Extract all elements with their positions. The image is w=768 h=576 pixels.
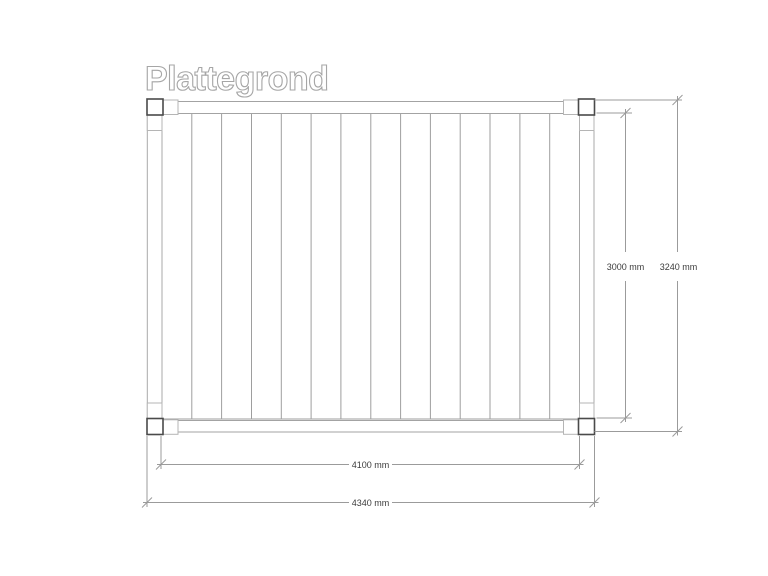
corner-post-bottom-left [147, 419, 163, 435]
corner-post-top-left [147, 99, 163, 115]
top-beam [163, 102, 579, 114]
plattegrond-drawing-page: Plattegrond [0, 0, 768, 576]
drawing-title: Plattegrond [145, 60, 328, 98]
floor-plan-canvas: Plattegrond [0, 0, 768, 576]
dimension-label-outer-height: 3240 mm [660, 262, 698, 272]
bottom-beam [163, 421, 579, 433]
left-rail [147, 115, 162, 419]
roof-planks [192, 114, 550, 420]
dimension-4340mm [142, 436, 600, 508]
right-rail [580, 115, 595, 419]
corner-post-top-right [579, 99, 595, 115]
dimension-label-outer-width: 4340 mm [352, 498, 390, 508]
dimension-label-inner-height: 3000 mm [607, 262, 645, 272]
corner-post-bottom-right [579, 419, 595, 435]
dimension-label-inner-width: 4100 mm [352, 460, 390, 470]
